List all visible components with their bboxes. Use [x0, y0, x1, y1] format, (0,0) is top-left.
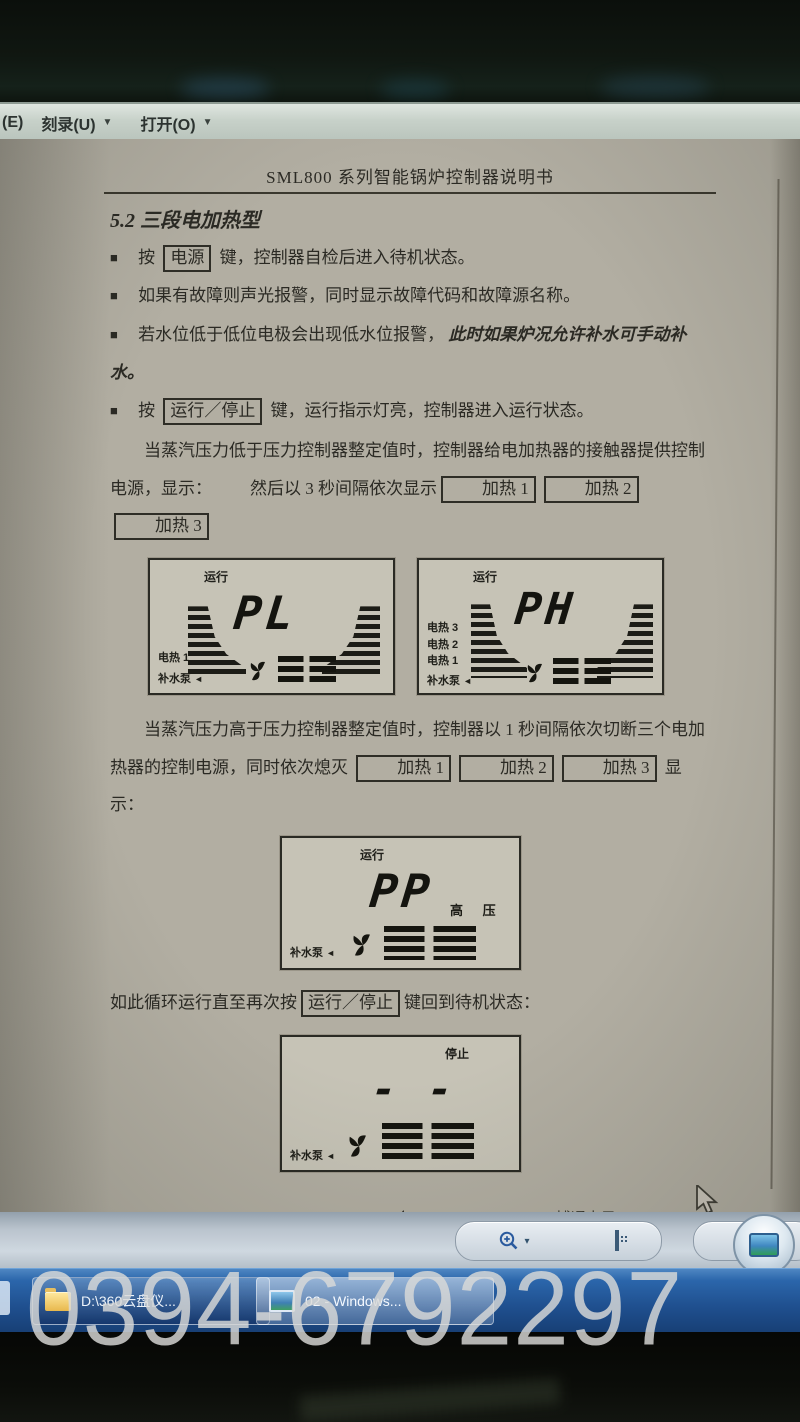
taskbar-edge-item[interactable]	[0, 1281, 10, 1315]
lcd-value: PL	[231, 586, 300, 640]
pump-pointer-icon: ◄	[326, 948, 335, 958]
page-left-shadow	[0, 139, 110, 1212]
lcd-pump-label: 补水泵 ◄	[290, 1147, 335, 1163]
pump-pointer-icon: ◄	[326, 1151, 335, 1161]
manual-page: SML800 系列智能锅炉控制器说明书 5.2 三段电加热型 ■ 按 电源 键，…	[110, 163, 710, 1212]
bullet-icon: ■	[110, 288, 118, 303]
lcd-display-stop: 停止 - - 补水泵 ◄	[280, 1035, 521, 1172]
lcd-pump-label: 补水泵 ◄	[427, 672, 472, 688]
lcd-level-bars	[553, 658, 611, 684]
lcd-value: PH	[512, 584, 578, 635]
loop-sentence: 如此循环运行直至再次按运行／停止键回到待机状态：	[110, 984, 710, 1021]
fan-icon	[246, 658, 272, 684]
heat1-key-label: 加热 1	[356, 755, 451, 782]
lcd-level-bars	[278, 656, 336, 682]
lcd-pump-label: 补水泵 ◄	[290, 944, 335, 960]
pump-pointer-icon: ◄	[463, 676, 472, 686]
chevron-down-icon: ▼	[203, 117, 213, 128]
bullet-run-stop: ■ 按 运行／停止 键，运行指示灯亮，控制器进入运行状态。	[110, 392, 710, 430]
section-heading: 5.2 三段电加热型	[110, 204, 710, 233]
lcd-value: - -	[370, 1067, 459, 1113]
lcd-heat-labels: 电热 3 电热 2 电热 1	[427, 620, 458, 670]
bullet-low-water: ■ 若水位低于低位电极会出现低水位报警， 此时如果炉况允许补水可手动补水。	[110, 316, 710, 393]
fan-icon	[348, 930, 378, 960]
bullet-fault: ■ 如果有故障则声光报警，同时显示故障代码和故障源名称。	[110, 277, 710, 315]
fan-icon	[523, 660, 549, 686]
page-title: SML800 系列智能锅炉控制器说明书	[110, 163, 710, 188]
heat3-key-label: 加热 3	[114, 513, 209, 540]
run-stop-key-label: 运行／停止	[301, 990, 400, 1017]
lcd-value: PP	[367, 864, 436, 918]
lcd-display-ph: 运行 PH 电热 3 电热 2 电热 1 补水泵 ◄	[417, 558, 664, 695]
lcd-display-pl: 运行 PL 电热 1 补水泵 ◄	[148, 558, 395, 695]
bullet-power: ■ 按 电源 键，控制器自检后进入待机状态。	[110, 239, 710, 277]
lcd-figure-row: 运行 PL 电热 1 补水泵 ◄ 运行 PH	[148, 558, 710, 695]
actual-size-button[interactable]	[615, 1232, 619, 1250]
menu-item-burn[interactable]: 刻录(U) ▼	[27, 111, 126, 135]
slideshow-icon	[749, 1233, 779, 1257]
photo-viewer-icon	[269, 1290, 295, 1312]
taskbar-button-photo-viewer[interactable]: 02 - Windows...	[256, 1277, 494, 1325]
bullet-list: ■ 按 电源 键，控制器自检后进入待机状态。 ■ 如果有故障则声光报警，同时显示…	[110, 239, 710, 430]
viewer-toolbar: ▾	[0, 1212, 800, 1268]
heat3-key-label: 加热 3	[562, 755, 657, 782]
high-pressure-label: 高 压	[450, 900, 504, 919]
lcd-pump-label: 补水泵 ◄	[158, 670, 203, 686]
lcd-heat-labels: 电热 1	[158, 650, 189, 667]
bullet-icon: ■	[110, 250, 118, 265]
lcd-status: 停止	[445, 1045, 469, 1062]
pump-pointer-icon: ◄	[194, 674, 203, 684]
lcd-figure-stop-wrap: 停止 - - 补水泵 ◄	[280, 1035, 710, 1172]
zoom-controls-group: ▾	[455, 1221, 662, 1261]
heat1-key-label: 加热 1	[441, 476, 536, 503]
paragraph-pressure-low: 当蒸汽压力低于压力控制器整定值时，控制器给电加热器的接触器提供控制电源，显示：然…	[110, 432, 710, 544]
photo-background-top	[0, 0, 800, 102]
menu-item-open[interactable]: 打开(O) ▼	[126, 111, 226, 135]
heat2-key-label: 加热 2	[544, 476, 639, 503]
actual-size-icon	[615, 1230, 619, 1251]
taskbar-button-folder[interactable]: D:\360云盘仪...	[32, 1277, 270, 1325]
power-key-label: 电源	[163, 245, 211, 272]
menu-bar: (E) 刻录(U) ▼ 打开(O) ▼	[0, 102, 800, 143]
monitor-bezel	[0, 1332, 800, 1422]
mouse-cursor	[695, 1185, 721, 1212]
lcd-display-pp: 运行 PP 高 压 补水泵 ◄	[280, 836, 521, 970]
heat2-key-label: 加热 2	[459, 755, 554, 782]
bullet-icon: ■	[110, 327, 118, 342]
lcd-level-bars	[382, 1123, 474, 1161]
lcd-status: 运行	[473, 568, 497, 585]
lcd-figure-pp-wrap: 运行 PP 高 压 补水泵 ◄	[280, 836, 710, 970]
chevron-down-icon: ▾	[524, 1236, 529, 1247]
paragraph-pressure-high: 当蒸汽压力高于压力控制器整定值时，控制器以 1 秒间隔依次切断三个电加热器的控制…	[110, 711, 710, 823]
menu-item-partial[interactable]: (E)	[0, 114, 27, 132]
bullet-icon: ■	[110, 403, 118, 418]
folder-icon	[45, 1292, 71, 1311]
document-viewport: SML800 系列智能锅炉控制器说明书 5.2 三段电加热型 ■ 按 电源 键，…	[0, 139, 800, 1212]
lcd-level-bars	[384, 926, 476, 960]
run-stop-key-label: 运行／停止	[163, 398, 262, 425]
chevron-down-icon: ▼	[103, 117, 113, 128]
zoom-button[interactable]: ▾	[498, 1230, 529, 1252]
taskbar: D:\360云盘仪... 02 - Windows...	[0, 1268, 800, 1333]
fan-icon	[344, 1131, 374, 1161]
lcd-status: 运行	[204, 568, 228, 585]
lcd-status: 运行	[360, 846, 384, 863]
magnifier-plus-icon	[498, 1230, 520, 1252]
slideshow-button[interactable]	[733, 1214, 795, 1276]
title-divider	[104, 192, 716, 194]
